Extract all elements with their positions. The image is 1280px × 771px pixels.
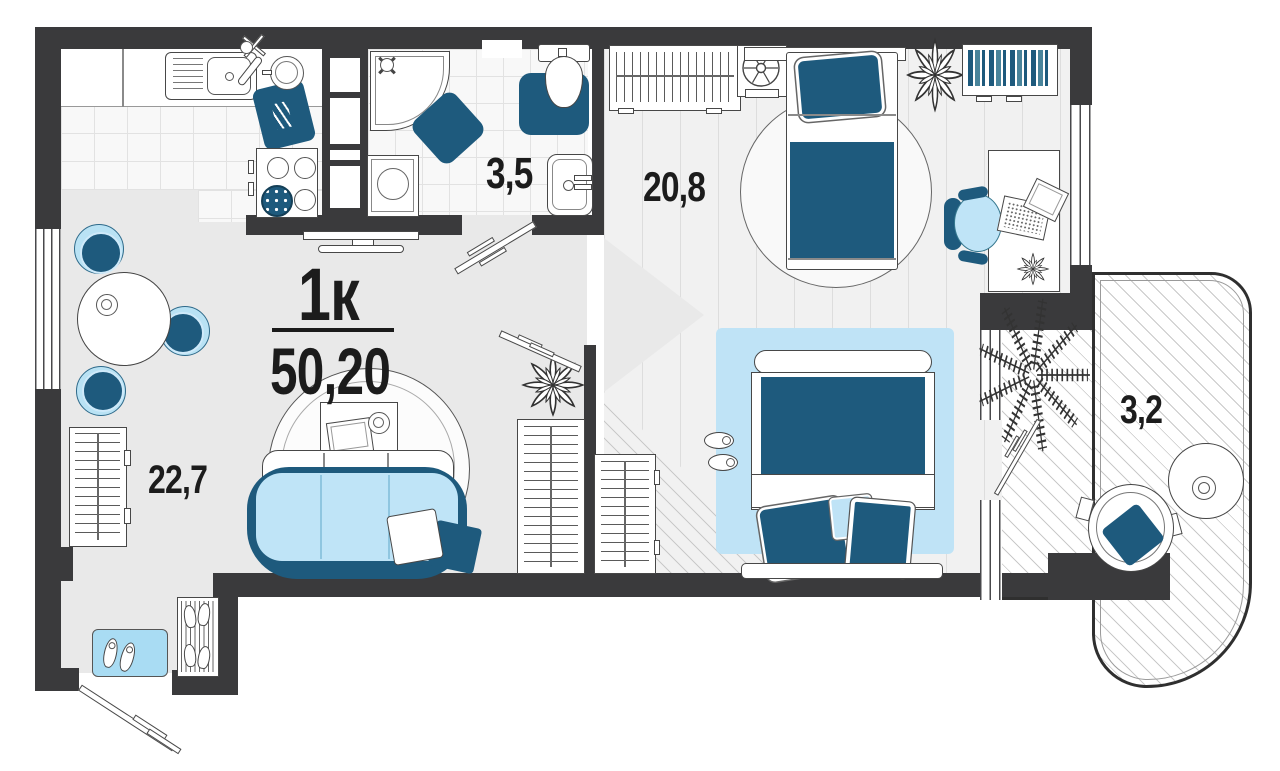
counter-divider <box>122 49 124 107</box>
oven-handle <box>248 160 254 174</box>
wall-left-mid <box>35 389 61 547</box>
area-label-bedroom: 20,8 <box>643 166 705 208</box>
pot-handle <box>262 70 272 75</box>
plant-icon <box>905 36 965 114</box>
wardrobe-rail <box>550 426 552 567</box>
sink-drainer <box>173 58 203 94</box>
book-page <box>330 422 368 452</box>
wall-bathroom-bedroom <box>592 49 604 230</box>
cup-icon <box>1192 476 1216 500</box>
cup-icon <box>368 412 390 434</box>
bed-foot-line <box>788 258 896 260</box>
dining-chair-seat <box>80 232 122 274</box>
wardrobe-handle <box>654 540 660 555</box>
burner <box>294 157 316 179</box>
pot-icon <box>270 56 304 90</box>
faucet-base <box>240 41 253 54</box>
wardrobe-handle <box>124 450 131 466</box>
bookshelf-foot <box>976 96 992 102</box>
wardrobe-handle <box>654 470 660 485</box>
pillow <box>798 55 883 120</box>
bookshelf <box>962 44 1058 96</box>
window-right <box>1070 105 1092 265</box>
basin-drain <box>563 180 574 191</box>
laptop-screen-inner <box>1029 183 1063 216</box>
cup-icon <box>96 294 118 316</box>
bed-blanket <box>790 142 894 258</box>
office-chair <box>954 194 1002 252</box>
wall-entry-jamb <box>35 668 79 691</box>
wall-right-upper <box>1070 49 1092 105</box>
unit-type-label: 1к <box>298 258 359 332</box>
total-area-label: 50,20 <box>270 338 390 404</box>
shaft-duct <box>330 98 360 144</box>
title-divider <box>272 328 394 332</box>
shoe-detail <box>108 642 116 650</box>
wardrobe-foot <box>706 108 722 114</box>
floor-plan: 1к 50,20 22,7 3,5 20,8 3,2 <box>0 0 1280 771</box>
cup-inner <box>373 417 384 428</box>
cup-inner <box>1198 482 1210 494</box>
open-wardrobe-rail <box>609 45 741 111</box>
shower-head <box>380 58 394 72</box>
wall-recess <box>482 40 522 58</box>
bookshelf-foot <box>1006 96 1022 102</box>
shaft-duct <box>330 166 360 208</box>
wardrobe <box>69 427 127 547</box>
bed-fold-line <box>788 114 896 116</box>
tv-base <box>318 245 404 253</box>
board-slashes <box>271 101 293 130</box>
washing-machine <box>367 155 419 217</box>
wardrobe-hangers <box>616 52 734 102</box>
dining-chair-seat <box>82 370 124 412</box>
bed-headroll <box>754 350 932 374</box>
sink-drain <box>225 72 234 81</box>
sofa-seat-seam <box>320 475 322 559</box>
fan-base <box>745 89 779 98</box>
desk-plant-icon <box>1016 252 1050 286</box>
slippers-icon <box>704 432 734 449</box>
wardrobe-handle <box>124 508 131 524</box>
wardrobe <box>517 419 585 574</box>
pot-inner <box>275 61 298 84</box>
shaft-duct <box>330 150 360 160</box>
wardrobe-foot <box>618 108 634 114</box>
wall-left-notch <box>35 547 73 581</box>
basin-tap <box>574 184 592 190</box>
slipper-detail <box>722 436 731 445</box>
cup-inner <box>101 299 112 310</box>
slipper-detail <box>726 458 735 467</box>
pillow <box>386 508 444 566</box>
window-left <box>35 229 61 389</box>
wardrobe-rail <box>97 433 99 540</box>
area-label-bathroom: 3,5 <box>486 152 533 196</box>
wardrobe-rail <box>624 461 626 567</box>
stove-icon <box>256 148 318 218</box>
bed-base <box>741 563 943 579</box>
area-label-living: 22,7 <box>148 460 207 500</box>
oven-handle <box>248 182 254 196</box>
balcony-window-lower <box>980 500 1002 600</box>
area-label-balcony: 3,2 <box>1120 390 1162 430</box>
dining-table <box>77 272 171 366</box>
washer-door <box>377 168 409 200</box>
wall-left-upper <box>35 27 61 229</box>
wardrobe <box>594 454 656 574</box>
basin-tap <box>574 175 592 181</box>
slippers-icon <box>708 454 738 471</box>
bed-blanket <box>761 377 925 477</box>
wardrobe-rail <box>616 75 734 77</box>
books <box>968 50 1052 86</box>
burner <box>267 157 289 179</box>
pan-icon <box>261 185 293 217</box>
burner <box>294 189 316 211</box>
shaft-duct <box>330 58 360 92</box>
shoe-detail <box>125 645 134 654</box>
